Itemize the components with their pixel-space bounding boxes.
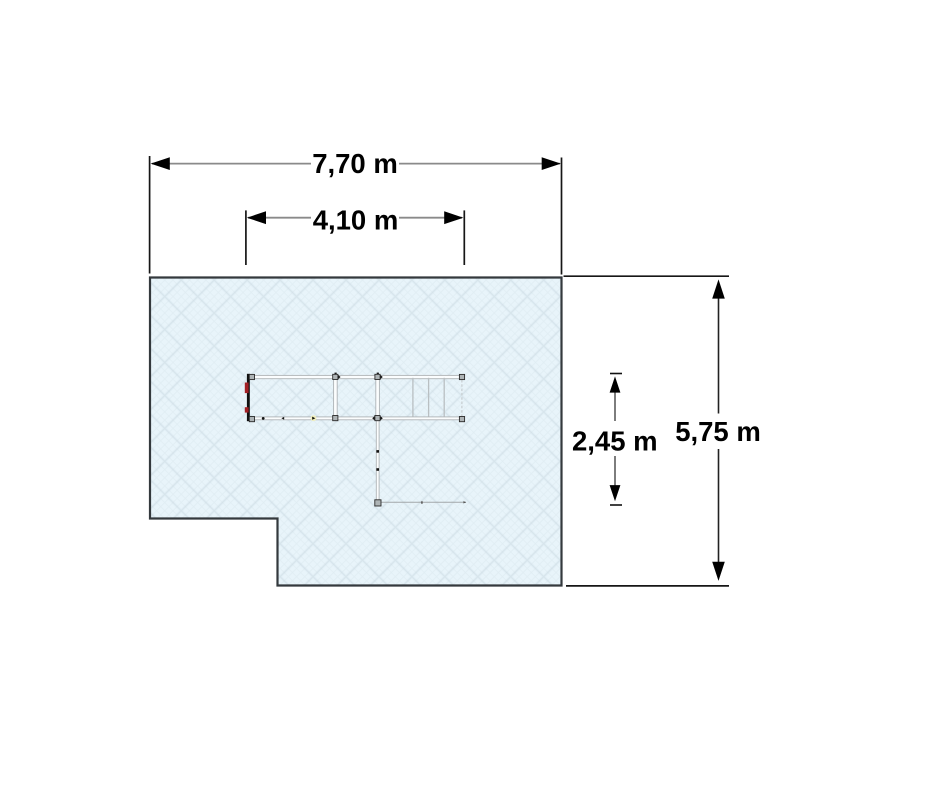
svg-text:7,70 m: 7,70 m xyxy=(312,148,398,179)
svg-text:4,10 m: 4,10 m xyxy=(313,205,399,236)
svg-text:5,75 m: 5,75 m xyxy=(675,416,761,447)
svg-text:2,45 m: 2,45 m xyxy=(572,425,658,456)
